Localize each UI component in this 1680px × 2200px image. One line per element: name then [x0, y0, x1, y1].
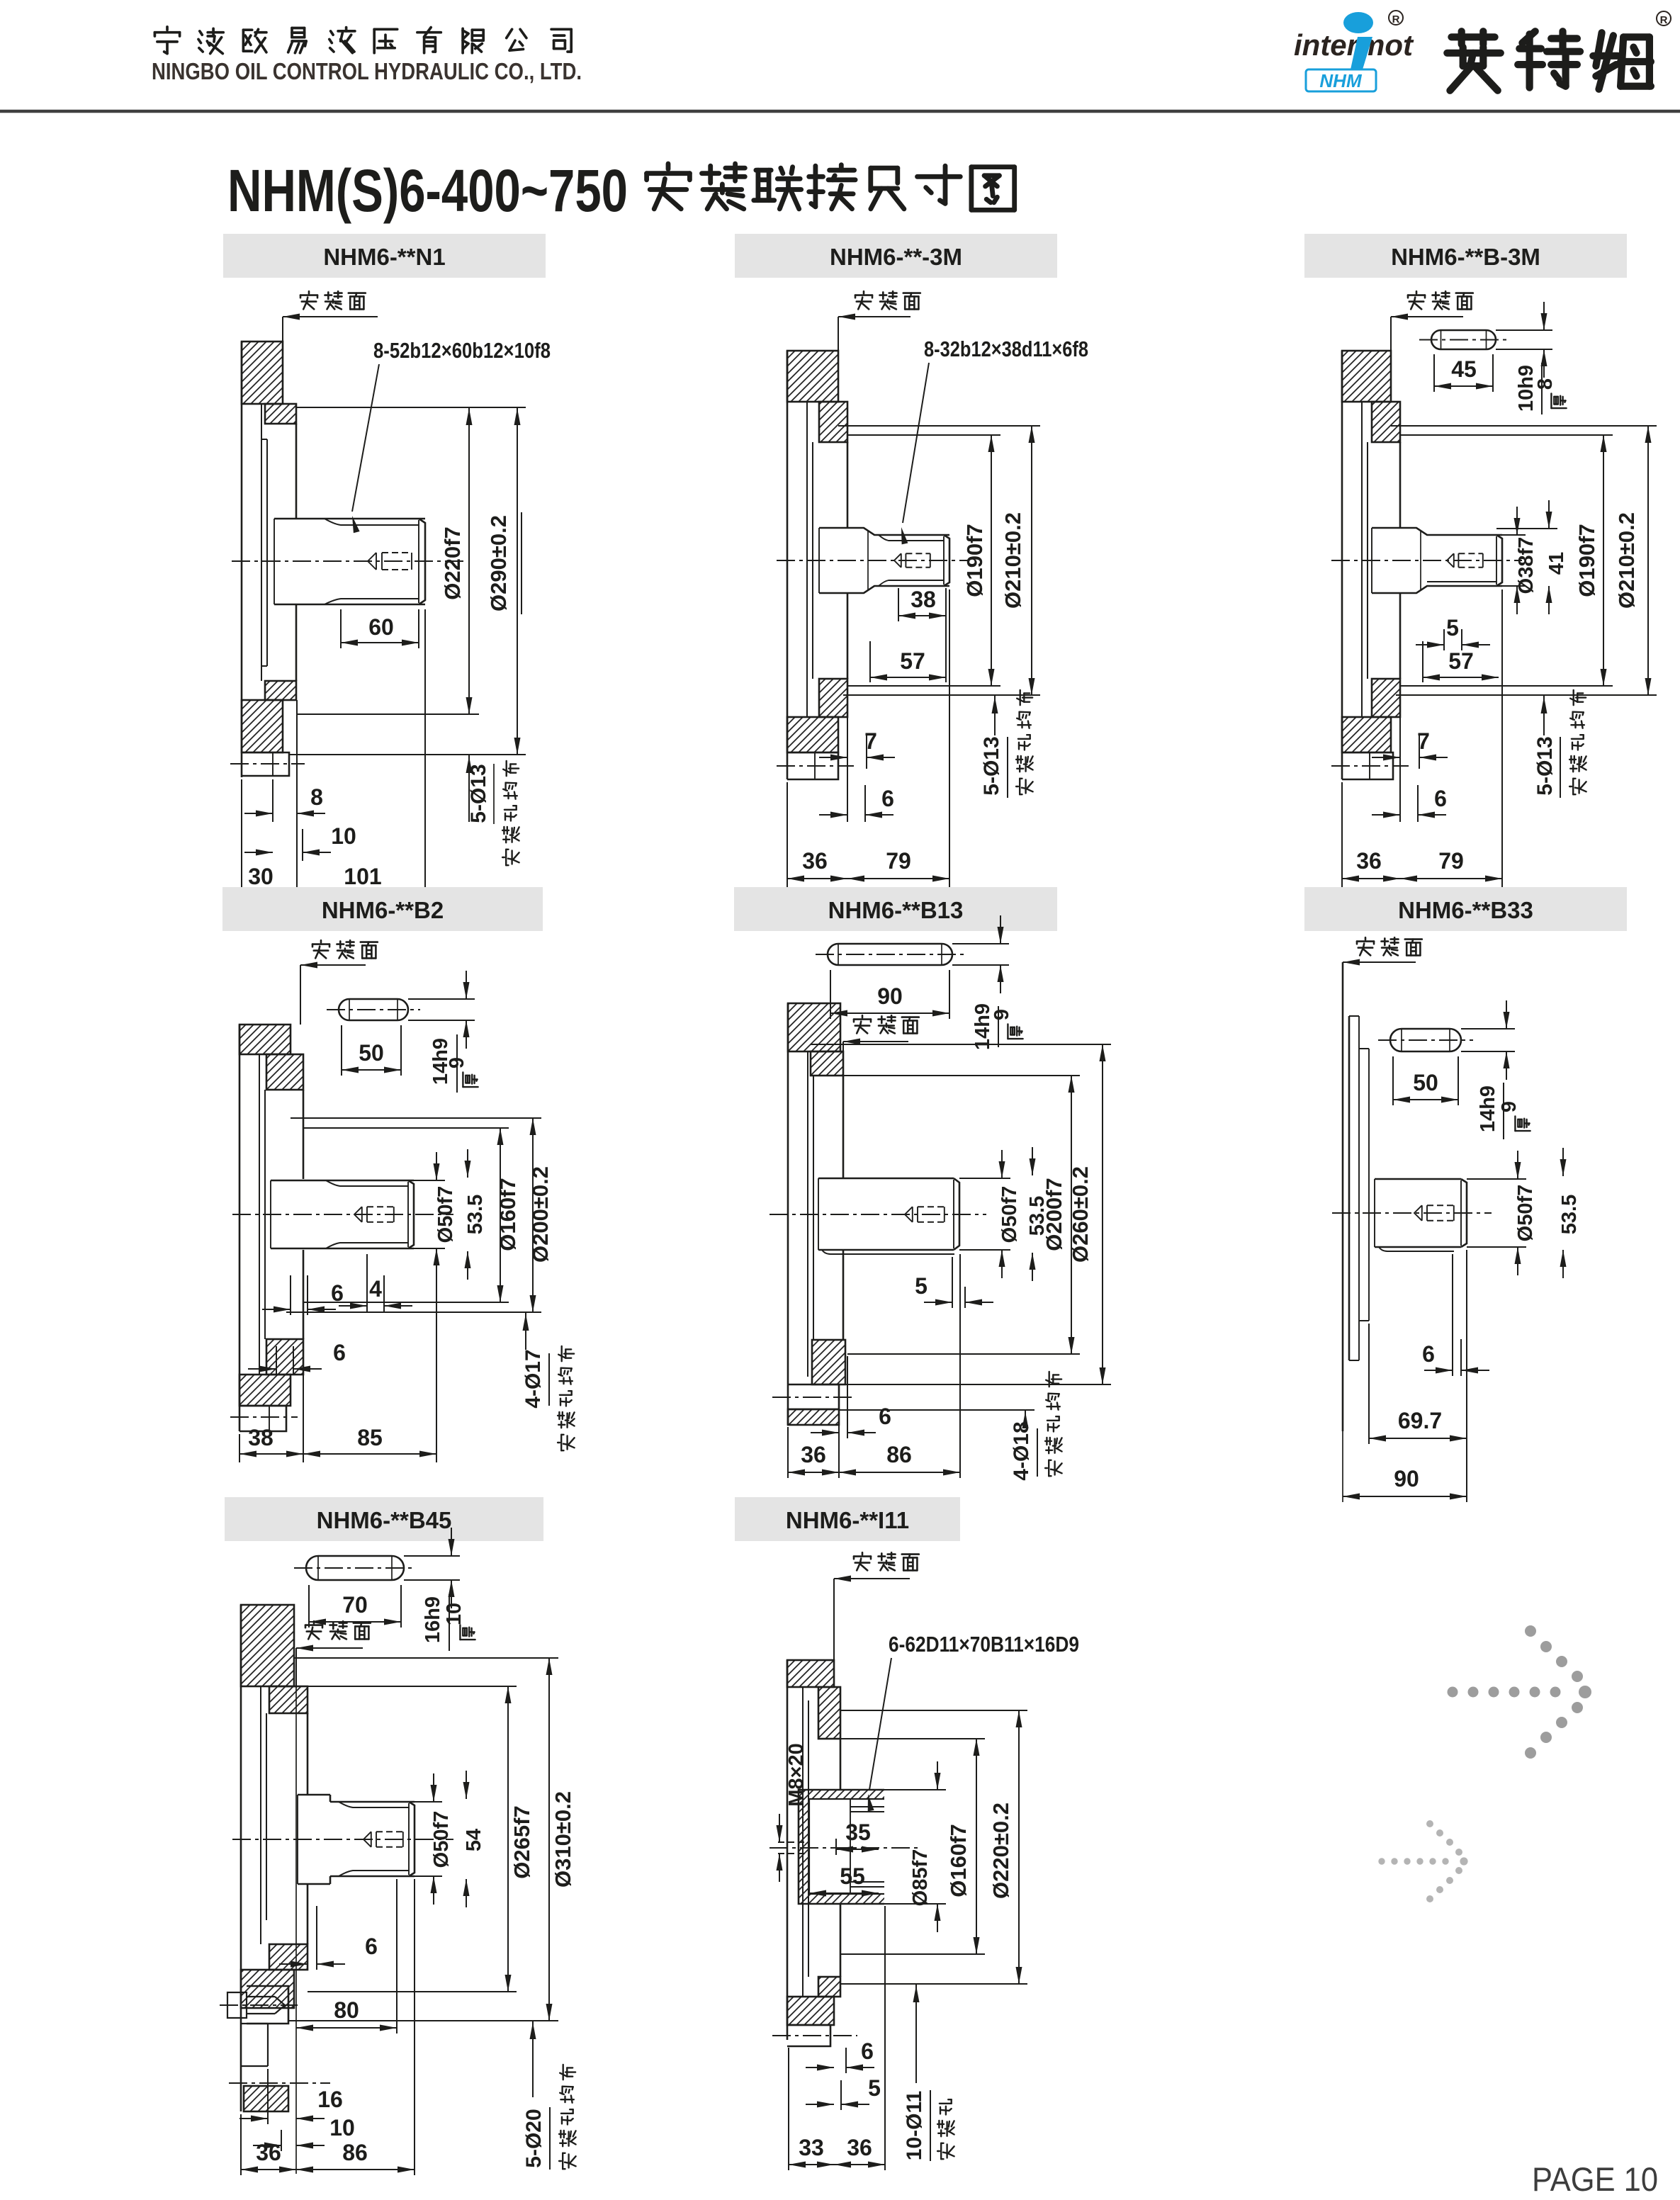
svg-text:6: 6: [1422, 1341, 1435, 1367]
svg-text:36: 36: [802, 848, 828, 874]
svg-text:5: 5: [1446, 615, 1459, 641]
svg-text:38: 38: [911, 587, 936, 612]
svg-text:NHM6-**-3M: NHM6-**-3M: [830, 244, 962, 270]
svg-text:PAGE 10: PAGE 10: [1532, 2160, 1658, 2198]
svg-text:6: 6: [365, 1934, 378, 1959]
svg-text:R: R: [1660, 14, 1668, 26]
svg-text:90: 90: [1394, 1466, 1419, 1491]
svg-text:69.7: 69.7: [1398, 1408, 1442, 1433]
svg-text:101: 101: [344, 864, 381, 889]
svg-text:5: 5: [915, 1273, 928, 1299]
svg-text:4: 4: [369, 1276, 382, 1302]
svg-text:14h9: 14h9: [1477, 1085, 1499, 1132]
svg-text:Ø50f7: Ø50f7: [430, 1811, 453, 1868]
svg-text:6: 6: [861, 2038, 874, 2064]
svg-text:16h9: 16h9: [422, 1596, 444, 1643]
svg-text:54: 54: [463, 1829, 485, 1851]
svg-text:4-Ø18: 4-Ø18: [1010, 1421, 1033, 1480]
svg-text:55: 55: [840, 1863, 865, 1889]
svg-text:NHM6-**B33: NHM6-**B33: [1398, 897, 1533, 923]
svg-text:60: 60: [368, 614, 394, 640]
svg-text:53.5: 53.5: [1558, 1195, 1581, 1234]
svg-text:6: 6: [1434, 786, 1447, 811]
svg-text:36: 36: [1356, 848, 1382, 874]
svg-text:36: 36: [847, 2135, 872, 2160]
svg-text:NHM6-**B2: NHM6-**B2: [322, 897, 444, 923]
svg-text:41: 41: [1545, 552, 1568, 575]
svg-text:Ø200f7: Ø200f7: [1042, 1178, 1066, 1251]
svg-text:Ø200±0.2: Ø200±0.2: [528, 1166, 553, 1263]
svg-text:30: 30: [248, 864, 274, 889]
svg-text:8-32b12×38d11×6f8: 8-32b12×38d11×6f8: [924, 337, 1088, 361]
svg-text:9: 9: [1498, 1101, 1521, 1112]
svg-text:Ø220±0.2: Ø220±0.2: [988, 1803, 1013, 1899]
svg-text:10: 10: [329, 2115, 355, 2140]
svg-text:Ø160f7: Ø160f7: [946, 1824, 971, 1897]
svg-text:7: 7: [864, 728, 877, 754]
svg-text:5-Ø13: 5-Ø13: [1533, 736, 1557, 795]
svg-text:10-Ø11: 10-Ø11: [903, 2091, 926, 2160]
svg-text:5-Ø13: 5-Ø13: [467, 764, 490, 823]
svg-text:8: 8: [310, 784, 323, 810]
svg-text:Ø220f7: Ø220f7: [440, 526, 465, 599]
svg-text:Ø310±0.2: Ø310±0.2: [551, 1791, 575, 1888]
svg-text:Ø190f7: Ø190f7: [1574, 524, 1599, 597]
svg-text:5-Ø20: 5-Ø20: [522, 2109, 546, 2167]
svg-text:5: 5: [868, 2075, 881, 2101]
svg-text:Ø210±0.2: Ø210±0.2: [1000, 512, 1025, 609]
svg-text:NHM6-**B13: NHM6-**B13: [828, 897, 964, 923]
svg-text:86: 86: [886, 1442, 912, 1467]
svg-text:57: 57: [1448, 648, 1474, 674]
svg-text:6: 6: [331, 1280, 344, 1306]
svg-text:79: 79: [886, 848, 911, 874]
svg-text:Ø50f7: Ø50f7: [434, 1186, 457, 1243]
svg-text:6: 6: [881, 786, 894, 811]
svg-text:NINGBO OIL CONTROL HYDRAULIC C: NINGBO OIL CONTROL HYDRAULIC CO., LTD.: [152, 58, 582, 84]
svg-text:Ø265f7: Ø265f7: [509, 1805, 534, 1878]
svg-text:45: 45: [1451, 356, 1477, 382]
svg-text:6: 6: [879, 1404, 891, 1429]
svg-text:5-Ø13: 5-Ø13: [980, 736, 1003, 795]
svg-text:Ø50f7: Ø50f7: [998, 1186, 1021, 1243]
svg-text:Ø85f7: Ø85f7: [909, 1849, 932, 1907]
svg-text:Ø290±0.2: Ø290±0.2: [486, 515, 511, 611]
svg-text:38: 38: [248, 1425, 274, 1450]
svg-text:Ø160f7: Ø160f7: [495, 1178, 520, 1251]
svg-text:90: 90: [877, 983, 903, 1009]
svg-text:Ø260±0.2: Ø260±0.2: [1068, 1166, 1093, 1263]
svg-text:6-62D11×70B11×16D9: 6-62D11×70B11×16D9: [889, 1632, 1079, 1657]
svg-text:33: 33: [799, 2135, 824, 2160]
svg-text:36: 36: [256, 2140, 281, 2165]
svg-text:Ø210±0.2: Ø210±0.2: [1614, 512, 1639, 609]
svg-text:9: 9: [991, 1009, 1013, 1020]
svg-text:53.5: 53.5: [464, 1195, 487, 1234]
svg-text:6: 6: [333, 1340, 346, 1365]
svg-text:Ø50f7: Ø50f7: [1514, 1185, 1537, 1242]
svg-text:16: 16: [317, 2087, 343, 2112]
svg-text:NHM(S)6-400~750: NHM(S)6-400~750: [227, 157, 628, 224]
svg-text:50: 50: [359, 1040, 384, 1066]
svg-text:Ø38f7: Ø38f7: [1515, 537, 1538, 594]
svg-text:70: 70: [342, 1592, 368, 1618]
svg-text:10: 10: [331, 823, 356, 849]
svg-text:4-Ø17: 4-Ø17: [522, 1349, 545, 1408]
svg-text:57: 57: [900, 648, 925, 674]
svg-text:NHM: NHM: [1319, 70, 1363, 91]
svg-text:85: 85: [357, 1425, 383, 1450]
svg-text:79: 79: [1438, 848, 1464, 874]
svg-text:NHM6-**N1: NHM6-**N1: [323, 244, 445, 270]
svg-text:M8×20: M8×20: [785, 1743, 808, 1806]
svg-text:Ø190f7: Ø190f7: [962, 524, 987, 597]
svg-text:9: 9: [446, 1057, 468, 1068]
svg-text:NHM6-**B-3M: NHM6-**B-3M: [1391, 244, 1540, 270]
svg-text:35: 35: [845, 1820, 871, 1845]
svg-text:80: 80: [334, 1997, 359, 2023]
svg-text:NHM6-**B45: NHM6-**B45: [317, 1507, 452, 1533]
svg-text:36: 36: [801, 1442, 826, 1467]
svg-text:8: 8: [1534, 378, 1557, 390]
svg-text:R: R: [1392, 13, 1400, 26]
svg-text:7: 7: [1417, 728, 1430, 754]
svg-text:86: 86: [342, 2140, 368, 2165]
svg-text:NHM6-**I11: NHM6-**I11: [786, 1507, 909, 1533]
svg-text:10: 10: [443, 1603, 466, 1625]
svg-text:8-52b12×60b12×10f8: 8-52b12×60b12×10f8: [373, 338, 551, 363]
svg-text:50: 50: [1413, 1070, 1438, 1095]
